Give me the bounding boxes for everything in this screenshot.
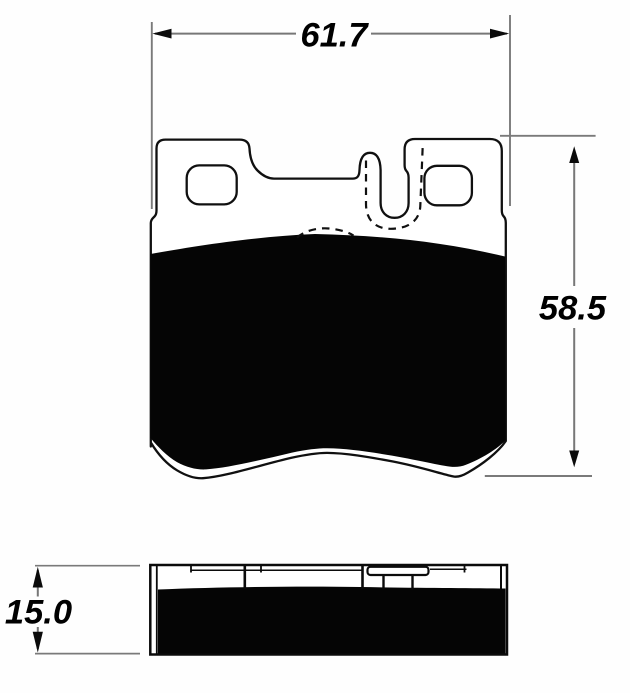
svg-text:61.7: 61.7 [300,17,369,55]
svg-text:15.0: 15.0 [5,594,72,632]
svg-text:58.5: 58.5 [539,290,607,328]
